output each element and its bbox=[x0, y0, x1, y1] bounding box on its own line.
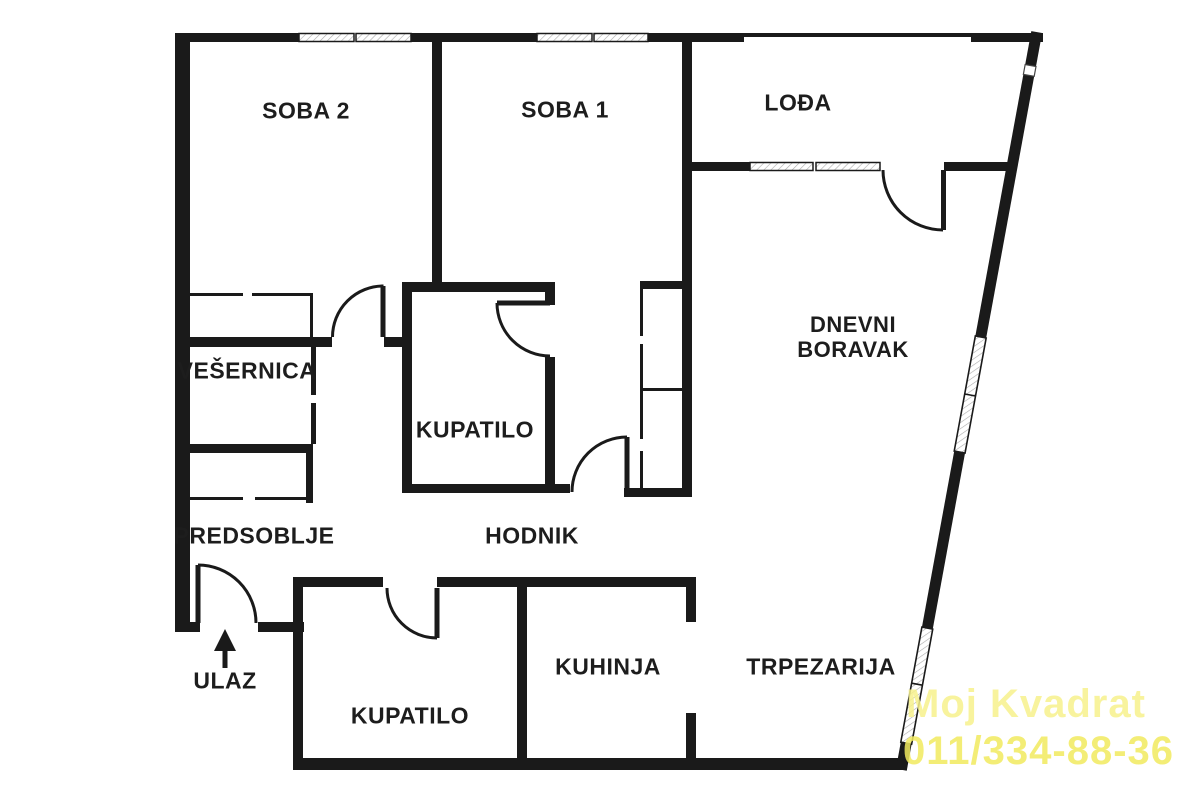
door-arc bbox=[387, 588, 437, 638]
door-arc bbox=[883, 170, 943, 230]
door-symbols bbox=[196, 170, 947, 638]
door-arc bbox=[497, 303, 550, 356]
floor-plan-drawing bbox=[0, 0, 1200, 801]
window-symbols bbox=[299, 34, 880, 171]
slanted-wall bbox=[896, 31, 1042, 771]
window-symbol bbox=[901, 627, 933, 744]
interior-walls bbox=[178, 33, 1014, 770]
wardrobe-lines bbox=[182, 288, 684, 503]
outer-walls bbox=[175, 33, 1043, 770]
door-arc bbox=[572, 437, 627, 492]
entrance-arrow-icon bbox=[214, 629, 236, 668]
window-symbol bbox=[1023, 65, 1036, 77]
door-arc bbox=[333, 286, 384, 337]
floor-plan: SOBA 2 SOBA 1 LOĐA DNEVNI BORAVAK VEŠERN… bbox=[0, 0, 1200, 801]
door-arc bbox=[198, 565, 256, 623]
